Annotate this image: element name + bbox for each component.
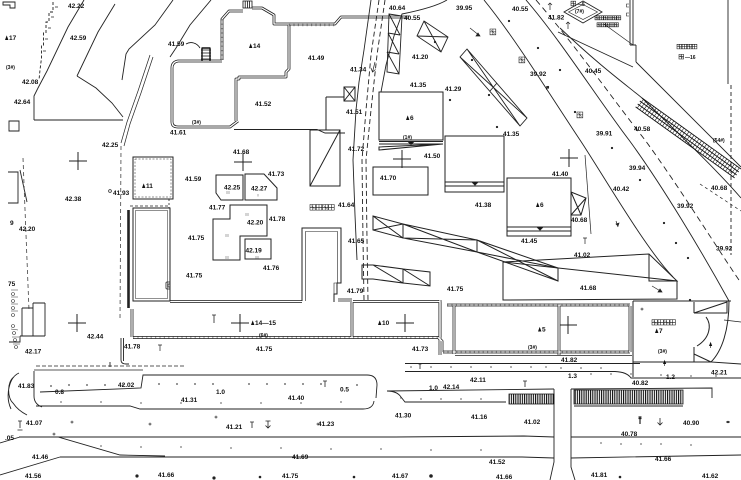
svg-text:41.66: 41.66: [496, 474, 513, 480]
svg-text:9: 9: [10, 220, 14, 227]
svg-text:1.0: 1.0: [216, 389, 225, 396]
svg-text:41.81: 41.81: [591, 472, 608, 479]
svg-text:41.49: 41.49: [308, 55, 325, 62]
svg-text:11: 11: [146, 183, 153, 190]
svg-text:5: 5: [542, 327, 546, 334]
svg-text:39.91: 39.91: [596, 131, 613, 138]
svg-text:41.30: 41.30: [395, 413, 412, 420]
svg-text:14—15: 14—15: [255, 320, 276, 327]
svg-text:41.72: 41.72: [348, 146, 365, 153]
svg-text:41.78: 41.78: [124, 344, 141, 351]
svg-text:41.66: 41.66: [655, 456, 672, 463]
svg-text:41.83: 41.83: [18, 383, 35, 390]
svg-text:41.70: 41.70: [380, 175, 397, 182]
svg-text:41.45: 41.45: [521, 238, 538, 245]
svg-text:42.59: 42.59: [70, 35, 87, 42]
svg-text:42.27: 42.27: [251, 186, 268, 193]
svg-text:41.52: 41.52: [489, 459, 506, 466]
svg-text:—16: —16: [685, 55, 696, 61]
svg-text:41.56: 41.56: [25, 473, 42, 480]
svg-text:41.64: 41.64: [338, 202, 355, 209]
svg-text:41.78: 41.78: [269, 216, 286, 223]
svg-text:7: 7: [659, 328, 663, 335]
svg-text:40.68: 40.68: [711, 185, 728, 192]
svg-text:41.23: 41.23: [318, 421, 335, 428]
svg-text:41.79: 41.79: [347, 288, 364, 295]
svg-text:1.2: 1.2: [666, 374, 675, 381]
svg-text:0.8: 0.8: [55, 389, 64, 396]
svg-text:41.29: 41.29: [445, 86, 462, 93]
svg-text:42.38: 42.38: [65, 196, 82, 203]
svg-text:75: 75: [8, 281, 16, 288]
svg-text:40.68: 40.68: [571, 217, 588, 224]
svg-text:6: 6: [540, 202, 544, 209]
svg-text:41.20: 41.20: [412, 54, 429, 61]
svg-text:39.92: 39.92: [716, 246, 733, 253]
svg-text:41.82: 41.82: [548, 15, 565, 22]
svg-text:39.95: 39.95: [456, 5, 473, 12]
svg-text:(3#): (3#): [6, 65, 15, 71]
svg-text:41.31: 41.31: [181, 397, 198, 404]
svg-text:40.55: 40.55: [404, 15, 421, 22]
svg-text:14: 14: [253, 43, 261, 50]
svg-text:42.64: 42.64: [14, 99, 31, 106]
svg-text:39.92: 39.92: [530, 71, 547, 78]
svg-text:—5: —5: [577, 2, 585, 8]
svg-text:42.08: 42.08: [22, 79, 39, 86]
svg-text:41.07: 41.07: [26, 420, 43, 427]
svg-text:42.02: 42.02: [118, 382, 135, 389]
svg-text:41.59: 41.59: [185, 176, 202, 183]
svg-text:41.46: 41.46: [32, 454, 49, 461]
svg-text:1.0: 1.0: [429, 385, 438, 392]
svg-text:41.77: 41.77: [209, 205, 226, 212]
svg-text:40.64: 40.64: [389, 5, 406, 12]
svg-text:41.67: 41.67: [392, 473, 409, 480]
svg-text:41.82: 41.82: [561, 357, 578, 364]
svg-text:42.21: 42.21: [711, 370, 728, 377]
svg-text:39.94: 39.94: [629, 165, 646, 172]
svg-text:(7#): (7#): [575, 9, 584, 15]
svg-text:41.93: 41.93: [113, 190, 130, 197]
svg-text:0.5: 0.5: [340, 387, 349, 394]
svg-text:6: 6: [410, 115, 414, 122]
svg-text:41.38: 41.38: [475, 202, 492, 209]
svg-text:40.42: 40.42: [613, 186, 630, 193]
svg-text:41.75: 41.75: [282, 473, 299, 480]
svg-text:41.59: 41.59: [168, 41, 185, 48]
svg-text:41.75: 41.75: [447, 286, 464, 293]
svg-text:41.51: 41.51: [346, 109, 363, 116]
svg-text:40.58: 40.58: [634, 126, 651, 133]
svg-text:40.82: 40.82: [632, 380, 649, 387]
svg-text:42.20: 42.20: [247, 220, 264, 227]
svg-text:42.14: 42.14: [443, 384, 460, 391]
svg-text:41.69: 41.69: [292, 454, 309, 461]
svg-text:41.66: 41.66: [158, 472, 175, 479]
svg-text:42.19: 42.19: [246, 248, 263, 255]
svg-text:42.44: 42.44: [87, 334, 104, 341]
svg-text:41.40: 41.40: [288, 395, 305, 402]
svg-text:(3#): (3#): [528, 345, 537, 351]
svg-text:42.25: 42.25: [102, 142, 119, 149]
svg-text:(54#): (54#): [713, 138, 725, 144]
svg-text:42.20: 42.20: [19, 226, 36, 233]
svg-text:(6#): (6#): [259, 333, 268, 339]
svg-text:41.75: 41.75: [256, 346, 273, 353]
svg-text:42.25: 42.25: [224, 185, 241, 192]
svg-text:41.73: 41.73: [268, 171, 285, 178]
svg-text:17: 17: [9, 35, 17, 42]
svg-text:41.76: 41.76: [263, 265, 280, 272]
svg-text:42.22: 42.22: [68, 3, 85, 10]
svg-text:41.65: 41.65: [348, 238, 365, 245]
svg-text:40.78: 40.78: [621, 431, 638, 438]
svg-text:42.17: 42.17: [25, 349, 42, 356]
svg-text:41.68: 41.68: [580, 285, 597, 292]
svg-text:39.92: 39.92: [677, 203, 694, 210]
svg-text:41.52: 41.52: [255, 101, 272, 108]
svg-text:.05: .05: [5, 435, 14, 442]
svg-text:41.61: 41.61: [170, 130, 187, 137]
svg-text:(3#): (3#): [192, 120, 201, 126]
svg-text:(1#): (1#): [403, 135, 412, 141]
svg-text:41.02: 41.02: [524, 419, 541, 426]
svg-text:41.21: 41.21: [226, 424, 243, 431]
svg-text:41.34: 41.34: [350, 67, 367, 74]
svg-text:40.55: 40.55: [512, 6, 529, 13]
svg-text:41.50: 41.50: [424, 153, 441, 160]
svg-text:41.75: 41.75: [186, 273, 203, 280]
svg-text:41.35: 41.35: [503, 131, 520, 138]
svg-text:41.75: 41.75: [188, 235, 205, 242]
svg-text:41.02: 41.02: [574, 252, 591, 259]
svg-text:40.90: 40.90: [683, 420, 700, 427]
svg-text:10: 10: [382, 320, 390, 327]
svg-text:40.45: 40.45: [585, 68, 602, 75]
svg-text:41.73: 41.73: [412, 346, 429, 353]
svg-text:41.35: 41.35: [410, 82, 427, 89]
svg-text:(3#): (3#): [658, 349, 667, 355]
svg-text:41.16: 41.16: [471, 414, 488, 421]
svg-text:41.68: 41.68: [233, 149, 250, 156]
svg-text:41.40: 41.40: [552, 171, 569, 178]
svg-text:42.11: 42.11: [470, 377, 486, 384]
svg-text:41.62: 41.62: [702, 473, 719, 480]
svg-text:1.3: 1.3: [568, 373, 577, 380]
